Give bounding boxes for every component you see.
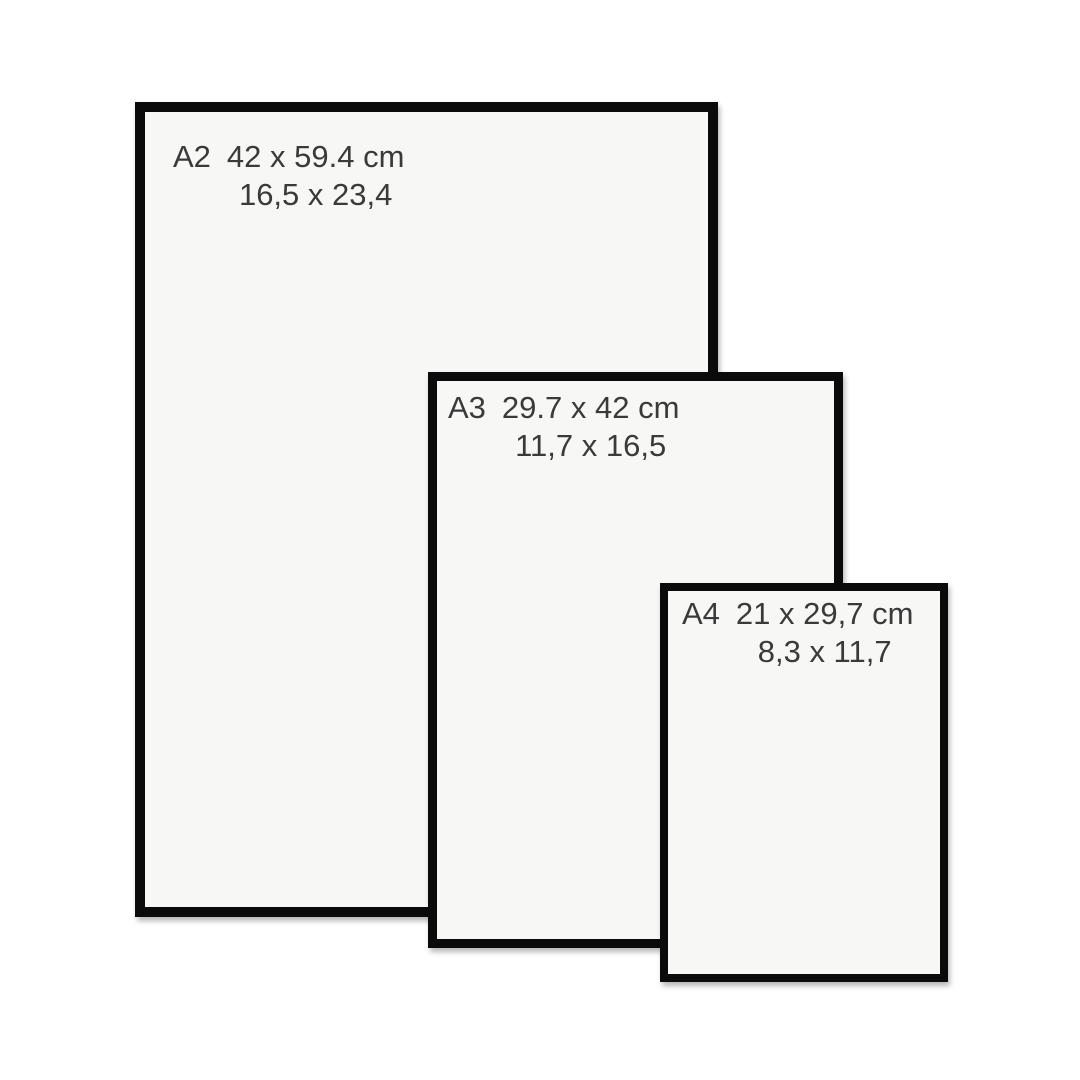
size-info-a4: A4 21 x 29,7 cm 8,3 x 11,7 xyxy=(668,591,940,671)
size-comparison-diagram: A2 42 x 59.4 cm 16,5 x 23,4 A3 29.7 x 42… xyxy=(0,0,1080,1080)
dims-cm-a4: 21 x 29,7 cm xyxy=(736,595,913,633)
size-dims-a2: 42 x 59.4 cm 16,5 x 23,4 xyxy=(227,138,404,214)
dims-inch-a4: 8,3 x 11,7 xyxy=(736,633,913,671)
size-dims-a3: 29.7 x 42 cm 11,7 x 16,5 xyxy=(502,389,679,465)
frame-a4: A4 21 x 29,7 cm 8,3 x 11,7 xyxy=(660,583,948,982)
size-label-a4: A4 xyxy=(682,595,720,633)
dims-inch-a2: 16,5 x 23,4 xyxy=(227,176,404,214)
dims-inch-a3: 11,7 x 16,5 xyxy=(502,427,679,465)
size-dims-a4: 21 x 29,7 cm 8,3 x 11,7 xyxy=(736,595,913,671)
dims-cm-a3: 29.7 x 42 cm xyxy=(502,389,679,427)
size-label-a3: A3 xyxy=(448,389,486,427)
dims-cm-a2: 42 x 59.4 cm xyxy=(227,138,404,176)
size-info-a3: A3 29.7 x 42 cm 11,7 x 16,5 xyxy=(437,381,834,465)
size-label-a2: A2 xyxy=(173,138,211,176)
size-info-a2: A2 42 x 59.4 cm 16,5 x 23,4 xyxy=(145,112,708,214)
